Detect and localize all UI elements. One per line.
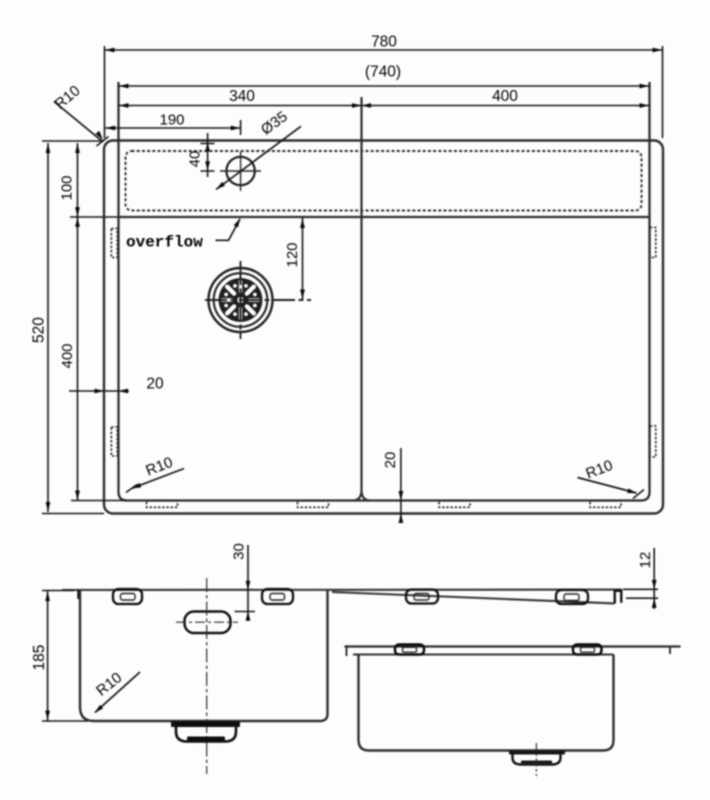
svg-text:20: 20	[146, 376, 164, 393]
svg-text:R10: R10	[52, 82, 84, 113]
svg-text:780: 780	[371, 34, 397, 51]
svg-text:30: 30	[231, 543, 248, 560]
svg-text:R10: R10	[583, 457, 615, 483]
svg-text:20: 20	[382, 452, 399, 469]
svg-text:(740): (740)	[365, 64, 401, 81]
svg-text:12: 12	[637, 552, 654, 569]
svg-text:overflow: overflow	[126, 234, 203, 252]
svg-text:100: 100	[59, 175, 76, 200]
svg-text:400: 400	[59, 343, 76, 368]
svg-text:520: 520	[31, 317, 48, 343]
svg-text:185: 185	[31, 645, 48, 671]
svg-text:340: 340	[229, 88, 255, 105]
svg-text:400: 400	[492, 88, 518, 105]
svg-text:R10: R10	[93, 669, 125, 699]
svg-text:40: 40	[187, 151, 204, 168]
svg-text:R10: R10	[143, 454, 175, 480]
svg-text:Ø35: Ø35	[258, 108, 291, 139]
svg-text:120: 120	[284, 242, 301, 267]
svg-text:190: 190	[159, 112, 184, 129]
